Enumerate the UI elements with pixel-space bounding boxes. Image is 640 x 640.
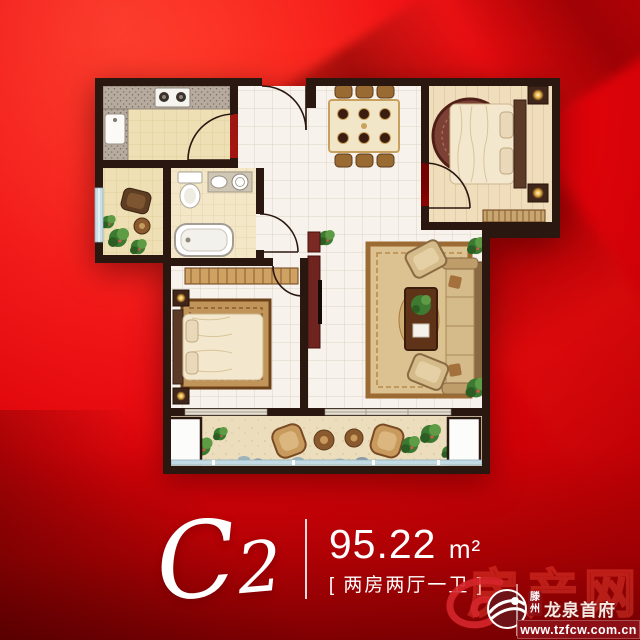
lamp xyxy=(177,392,186,401)
dining-chair xyxy=(335,154,352,167)
pillow xyxy=(500,112,513,138)
sofa-pillow xyxy=(448,363,462,377)
pillow xyxy=(186,320,198,342)
bay-box xyxy=(167,418,201,464)
toilet-tank xyxy=(178,172,202,183)
pillow xyxy=(500,148,513,174)
lamp xyxy=(177,294,186,303)
watermark-city-label: 滕 州 xyxy=(528,591,542,616)
table-tray xyxy=(413,324,429,337)
dining-chair xyxy=(335,85,352,98)
city-char-top: 滕 xyxy=(530,592,540,604)
sofa-pillow xyxy=(448,275,462,289)
dining-chair xyxy=(356,154,373,167)
unit-name: C2 xyxy=(151,499,285,620)
bathtub-drain xyxy=(186,238,191,243)
washing-machine xyxy=(232,174,248,190)
watermark-project-name: 龙泉首府 xyxy=(544,596,616,621)
balcony-glazing xyxy=(171,460,482,465)
sofa-armrest xyxy=(442,258,478,269)
master-headboard xyxy=(514,100,526,188)
kitchen-faucet xyxy=(113,118,117,122)
bay-box xyxy=(448,418,480,464)
hall-cabinet xyxy=(308,232,320,252)
watermark-url-bar: www.tzfcw.com.cn xyxy=(517,620,640,639)
pillow xyxy=(186,352,198,374)
lamp xyxy=(533,188,544,199)
city-char-bottom: 州 xyxy=(530,604,540,616)
watermark-url: www.tzfcw.com.cn xyxy=(520,623,637,637)
bedroom2-wardrobe xyxy=(185,268,298,284)
dining-chair xyxy=(377,154,394,167)
bath-sink xyxy=(211,176,227,188)
master-wardrobe xyxy=(483,210,545,222)
floor-plan xyxy=(92,72,564,484)
tv xyxy=(318,280,322,324)
bedroom2-headboard xyxy=(173,310,183,384)
caption-divider xyxy=(305,519,307,599)
area-value: 95.22 xyxy=(329,521,437,567)
dining-chair xyxy=(356,85,373,98)
watermark: 房产网 滕 州 龙泉首府 www.tzfcw.com.cn xyxy=(440,558,640,640)
lamp xyxy=(533,90,544,101)
floorplan-poster: C2 95.22 m² [ 两房两厅一卫 ] 房产网 滕 州 龙泉首府 www.… xyxy=(0,0,640,640)
dining-chair xyxy=(377,85,394,98)
